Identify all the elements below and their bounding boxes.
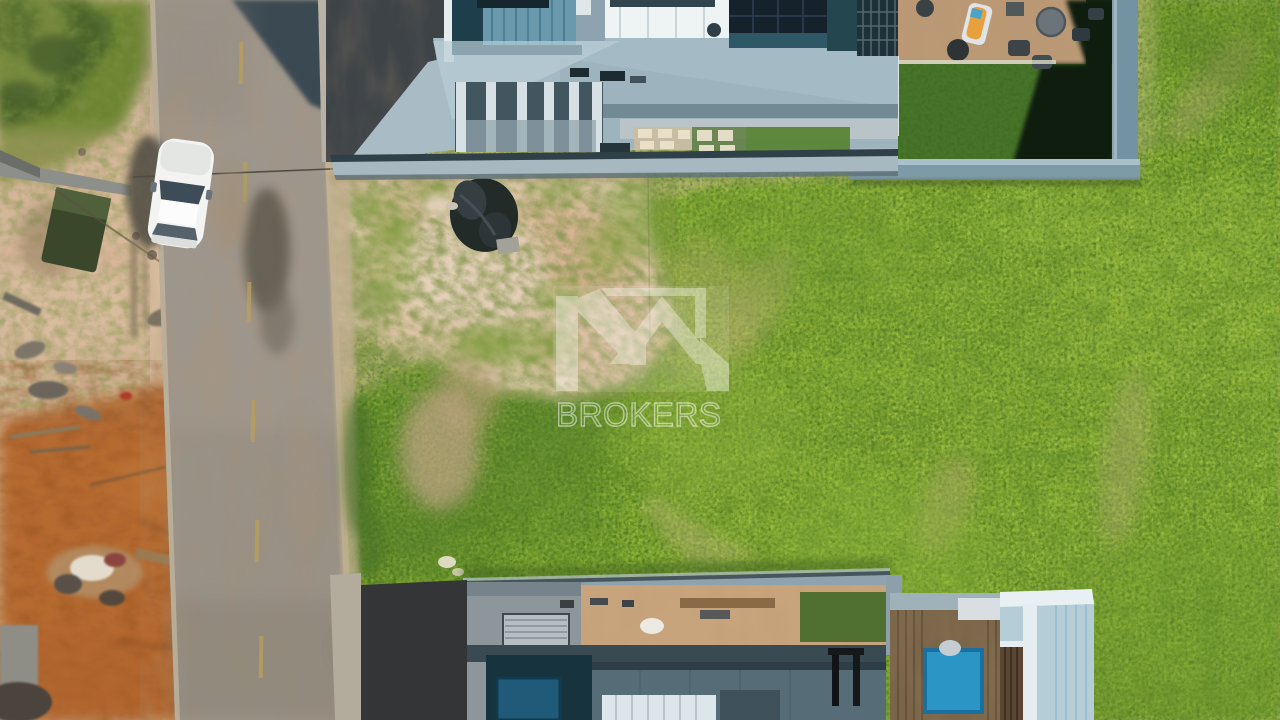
svg-text:BROKERS: BROKERS	[556, 396, 724, 433]
